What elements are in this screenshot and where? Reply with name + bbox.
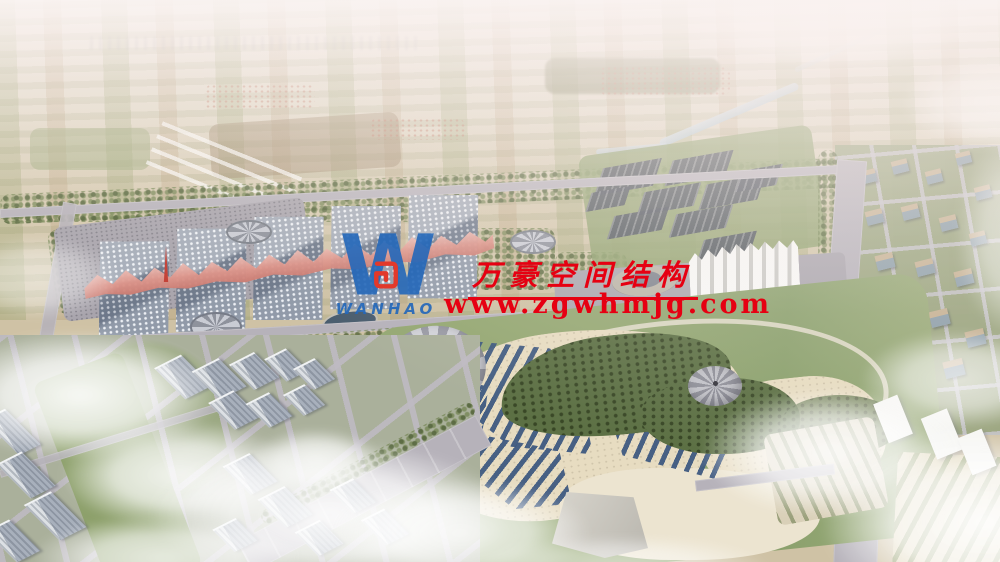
cloud	[250, 428, 380, 492]
watermark-logo: W WANHAO	[326, 230, 446, 330]
green-field	[30, 128, 150, 170]
round-hall-roof	[226, 220, 272, 244]
distant-city-skyline	[90, 36, 420, 50]
distant-village	[600, 66, 730, 96]
distant-village	[370, 118, 465, 140]
distant-village	[205, 84, 315, 110]
logo-wordmark: WANHAO	[326, 300, 446, 318]
membrane-cone-tent	[688, 366, 742, 406]
logo-red-emblem-icon	[369, 256, 403, 294]
watermark-website: www.zgwhmjg.com	[444, 289, 772, 320]
round-hall-roof	[510, 230, 556, 254]
aerial-rendering: W WANHAO 万豪空间结构 www.zgwhmjg.com	[0, 0, 1000, 562]
